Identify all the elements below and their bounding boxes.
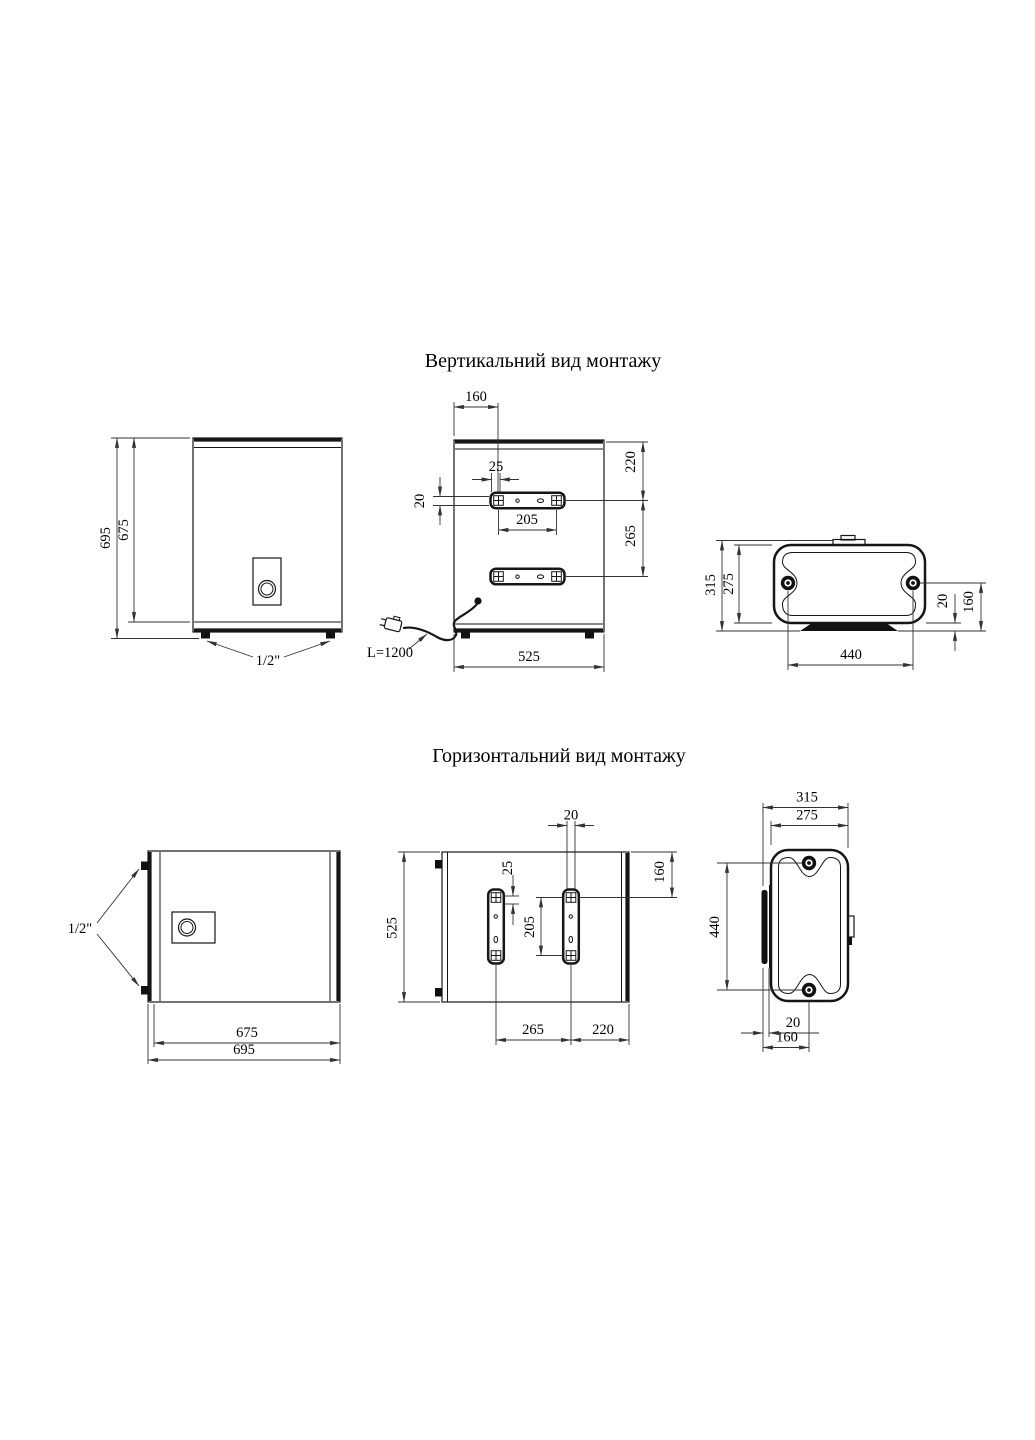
control-panel [172,912,215,943]
horizontal-side-view [762,850,855,1001]
dim-695: 695 [233,1042,255,1058]
mount-screw-top [802,856,816,870]
dim-205: 205 [516,512,538,528]
horizontal-back-dimensions: 20 525 25 205 160 265 220 [385,808,678,1046]
mounting-bracket-upper [491,493,565,509]
vertical-front-dimensions: 695 675 1/2" [98,438,330,669]
horizontal-front-view [141,851,340,1002]
pipe-size-label: 1/2" [256,653,281,669]
dim-220: 220 [592,1022,614,1038]
power-plug [379,613,403,632]
cable-length-label: L=1200 [367,645,413,661]
pipe-connection-left [201,632,210,639]
dim-160: 160 [776,1030,798,1046]
vertical-section-title: Вертикальний вид монтажу [425,350,661,372]
dim-220: 220 [623,451,639,473]
dim-315: 315 [796,790,818,806]
dim-160-screw: 160 [961,591,977,613]
dim-160: 160 [652,861,668,883]
pipe-connection-right [326,632,335,639]
boiler-mounting-drawing: Вертикальний вид монтажу 695 675 1/2" [0,0,1035,1440]
horizontal-front-dimensions: 1/2" 675 695 [68,869,340,1064]
foot-right [585,632,594,639]
dim-25: 25 [500,861,516,876]
mount-screw-left [781,576,795,590]
horizontal-section-title: Горизонтальний вид монтажу [432,745,686,767]
vertical-front-view [193,438,342,639]
dim-275: 275 [796,808,818,824]
dim-20: 20 [564,808,579,824]
dim-25: 25 [489,459,504,475]
mount-screw-right [906,576,920,590]
mounting-bracket-left [488,890,504,964]
dim-525: 525 [518,649,540,665]
dim-265: 265 [623,525,639,547]
dim-20: 20 [412,494,428,509]
dim-160: 160 [465,389,487,405]
foot-top [435,860,442,869]
dim-265: 265 [522,1022,544,1038]
dim-675: 675 [116,519,132,541]
foot-left [461,632,470,639]
dim-440: 440 [707,916,723,938]
dim-675: 675 [236,1025,258,1041]
pipe-connection-bottom [141,986,148,995]
dim-695: 695 [98,527,114,549]
technical-drawing-page: Вертикальний вид монтажу 695 675 1/2" [0,0,1035,1440]
vertical-top-dimensions: 315 275 20 160 440 [703,541,986,671]
dim-20-base: 20 [935,594,951,609]
dim-315: 315 [703,574,719,596]
base-foot [762,890,768,964]
dim-205: 205 [522,916,538,938]
foot-bottom [435,988,442,997]
pipe-size-label: 1/2" [68,921,93,937]
mounting-bracket-lower [491,569,565,585]
pipe-connection-top [141,862,148,871]
dim-525: 525 [385,917,401,939]
base-foot [800,623,898,631]
dim-440: 440 [840,647,862,663]
mounting-bracket-right [563,890,579,964]
horizontal-side-dimensions: 315 275 440 20 160 [707,790,848,1053]
vertical-top-view [774,536,925,632]
control-panel [253,558,281,605]
dim-275: 275 [721,573,737,595]
mount-screw-bottom [802,983,816,997]
